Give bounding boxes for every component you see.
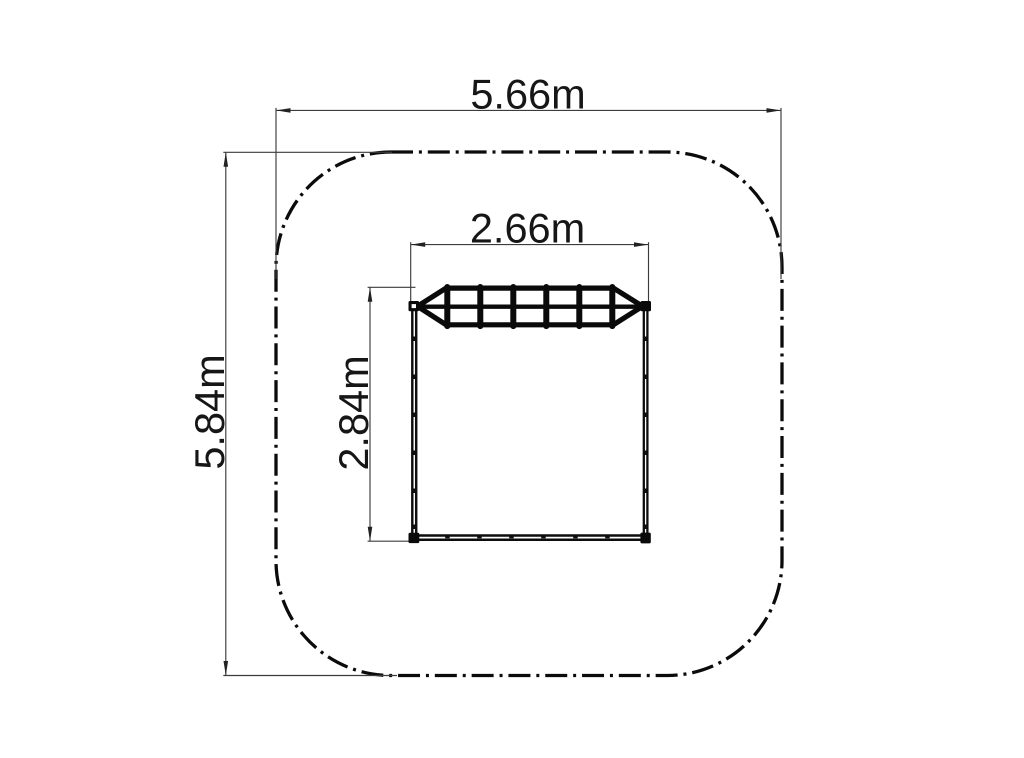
svg-text:2.84m: 2.84m: [330, 355, 377, 470]
svg-text:5.66m: 5.66m: [470, 71, 585, 118]
svg-text:5.84m: 5.84m: [186, 354, 233, 469]
svg-text:2.66m: 2.66m: [470, 205, 585, 252]
